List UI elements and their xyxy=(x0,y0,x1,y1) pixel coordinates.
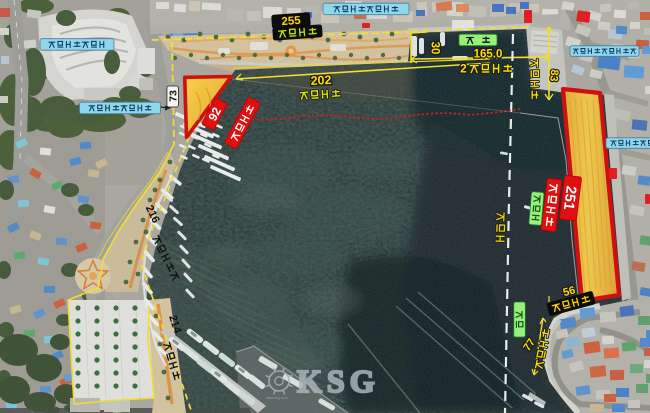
svg-text:30: 30 xyxy=(429,42,441,55)
svg-text:202: 202 xyxy=(310,73,332,88)
svg-text:251: 251 xyxy=(560,185,579,211)
svg-text:KSG: KSG xyxy=(297,363,380,399)
svg-text:165.0: 165.0 xyxy=(474,49,503,61)
svg-text:73: 73 xyxy=(167,90,179,102)
svg-text:83: 83 xyxy=(547,69,560,82)
svg-text:www.ksg.co.kr: www.ksg.co.kr xyxy=(266,396,289,400)
svg-text:2: 2 xyxy=(460,62,467,76)
